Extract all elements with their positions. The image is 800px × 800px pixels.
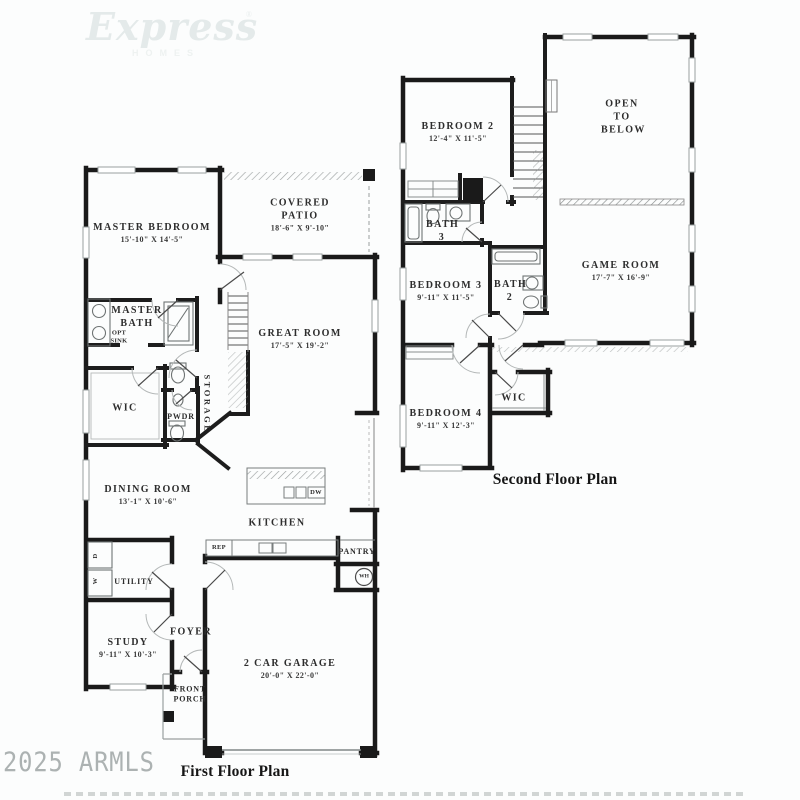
- room-label-bedroom4: BEDROOM 4 9'-11" X 12'-3": [410, 407, 483, 431]
- scan-artifact-line: [64, 792, 746, 796]
- floor2-walls-exterior: [403, 35, 694, 470]
- armls-watermark: 2025 ARMLS: [3, 747, 155, 778]
- label-washer: W: [92, 578, 100, 585]
- washer-dryer-icon: [88, 542, 112, 596]
- room-label-wic2: WIC: [501, 392, 526, 405]
- floor2-stairs-icon: [513, 80, 557, 200]
- room-label-utility: UTILITY: [114, 577, 153, 587]
- floorplan-drawing: [0, 0, 800, 800]
- floor2-posts: [463, 178, 483, 202]
- room-label-garage: 2 CAR GARAGE 20'-0" X 22'-0": [244, 657, 336, 681]
- room-label-storage: STORAGE: [201, 375, 212, 434]
- floor1-stairs-icon: [228, 292, 248, 408]
- floor1-windows: [83, 167, 378, 690]
- kitchen-island: [247, 468, 325, 504]
- label-rep: REP: [212, 544, 226, 552]
- first-floor-plan-title: First Floor Plan: [181, 763, 290, 781]
- room-label-bedroom2: BEDROOM 2 12'-4" X 11'-5": [422, 120, 495, 144]
- label-wh: WH: [359, 573, 369, 580]
- room-label-master-bedroom: MASTER BEDROOM 15'-10" X 14'-5": [93, 221, 211, 245]
- room-label-game-room: GAME ROOM 17'-7" X 16'-9": [582, 259, 660, 283]
- label-opt-sink: OPT SINK: [106, 330, 132, 347]
- room-label-wic: WIC: [112, 402, 137, 415]
- label-open-to-below: OPEN TO BELOW: [601, 98, 643, 137]
- great-room-niche: [369, 418, 374, 508]
- garage-door: [222, 750, 361, 754]
- room-label-covered-patio: COVERED PATIO 18'-6" X 9'-10": [256, 196, 344, 233]
- room-label-front-porch: FRONT PORCH: [167, 685, 213, 706]
- label-dryer: D: [92, 554, 100, 559]
- room-label-master-bath: MASTER BATH: [111, 304, 163, 330]
- label-dw: DW: [310, 489, 322, 497]
- second-floor-plan-title: Second Floor Plan: [493, 471, 618, 489]
- room-label-great-room: GREAT ROOM 17'-5" X 19'-2": [258, 327, 341, 351]
- room-label-bath3: BATH 3: [426, 218, 458, 244]
- room-label-study: STUDY 9'-11" X 10'-3": [99, 636, 157, 660]
- room-label-dining-room: DINING ROOM 13'-1" X 10'-6": [104, 483, 191, 507]
- room-label-kitchen: KITCHEN: [248, 517, 305, 530]
- room-label-bedroom3: BEDROOM 3 9'-11" X 11'-5": [410, 279, 483, 303]
- floorplan-sheet: Express ® HOMES: [0, 0, 800, 800]
- room-label-bath2: BATH 2: [494, 278, 526, 304]
- room-label-foyer: FOYER: [170, 626, 212, 639]
- room-label-pwdr: PWDR: [167, 412, 195, 422]
- room-label-pantry: PANTRY: [338, 547, 375, 557]
